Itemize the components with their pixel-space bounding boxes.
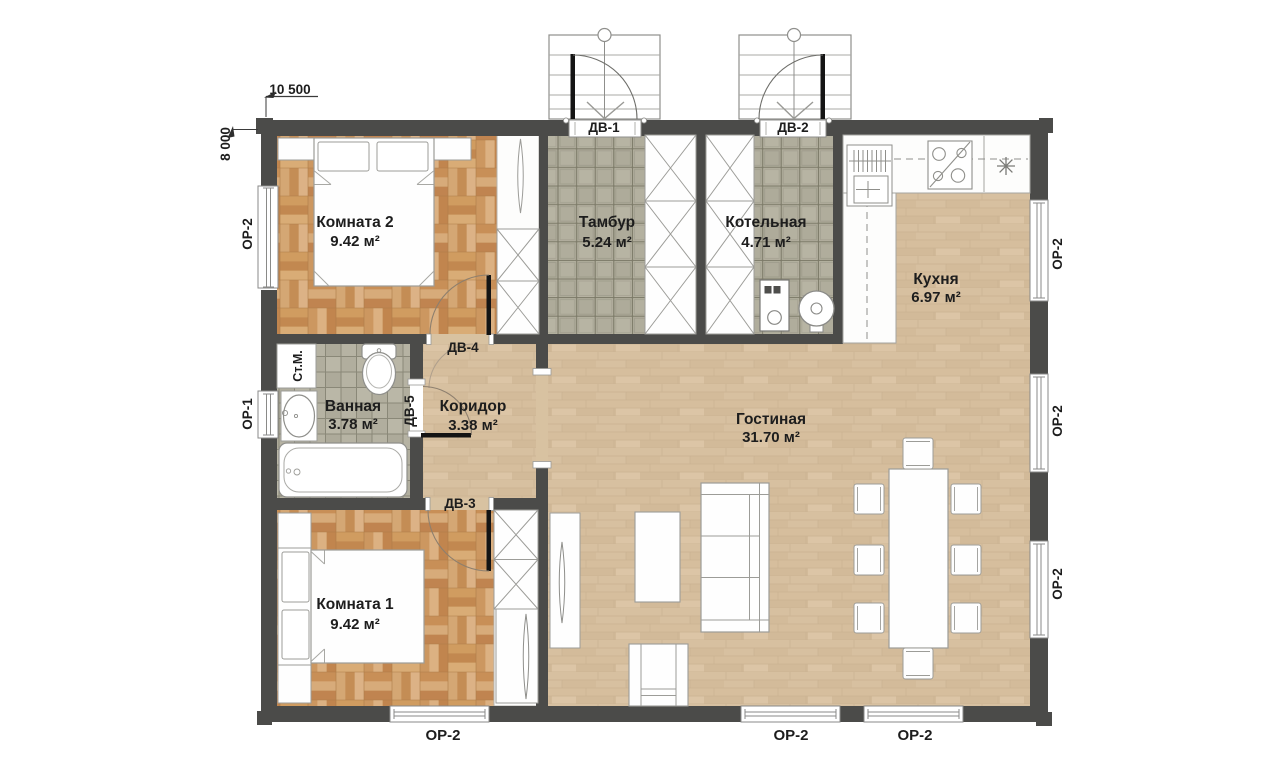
svg-text:ОР-2: ОР-2: [1050, 405, 1065, 437]
svg-text:ОР-2: ОР-2: [897, 727, 932, 744]
svg-text:ДВ-2: ДВ-2: [777, 120, 808, 135]
svg-text:3.78 м²: 3.78 м²: [328, 416, 377, 433]
svg-text:ОР-1: ОР-1: [240, 398, 255, 430]
svg-text:ОР-2: ОР-2: [1050, 238, 1065, 270]
svg-text:ДВ-4: ДВ-4: [447, 340, 479, 355]
svg-text:ДВ-5: ДВ-5: [402, 395, 417, 427]
svg-text:3.38 м²: 3.38 м²: [448, 417, 497, 434]
svg-text:Комната 2: Комната 2: [316, 214, 393, 231]
svg-text:4.71 м²: 4.71 м²: [741, 234, 790, 251]
svg-text:5.24 м²: 5.24 м²: [582, 234, 631, 251]
svg-text:9.42 м²: 9.42 м²: [330, 233, 379, 250]
svg-text:ДВ-1: ДВ-1: [588, 120, 620, 135]
svg-text:Ванная: Ванная: [325, 398, 381, 415]
svg-text:Ст.М.: Ст.М.: [291, 350, 305, 381]
svg-text:ОР-2: ОР-2: [1050, 568, 1065, 600]
svg-text:Тамбур: Тамбур: [579, 214, 635, 231]
svg-text:6.97 м²: 6.97 м²: [911, 289, 960, 306]
svg-text:Комната 1: Комната 1: [316, 596, 394, 613]
svg-text:9.42 м²: 9.42 м²: [330, 616, 379, 633]
svg-text:Коридор: Коридор: [440, 398, 507, 415]
svg-text:ОР-2: ОР-2: [240, 218, 255, 250]
svg-text:Котельная: Котельная: [725, 214, 806, 231]
svg-text:Гостиная: Гостиная: [736, 411, 806, 428]
svg-text:10 500: 10 500: [269, 82, 310, 97]
svg-text:31.70 м²: 31.70 м²: [742, 429, 800, 446]
svg-text:Кухня: Кухня: [913, 271, 958, 288]
svg-text:ДВ-3: ДВ-3: [444, 496, 476, 511]
svg-text:ОР-2: ОР-2: [773, 727, 808, 744]
svg-text:ОР-2: ОР-2: [425, 727, 460, 744]
